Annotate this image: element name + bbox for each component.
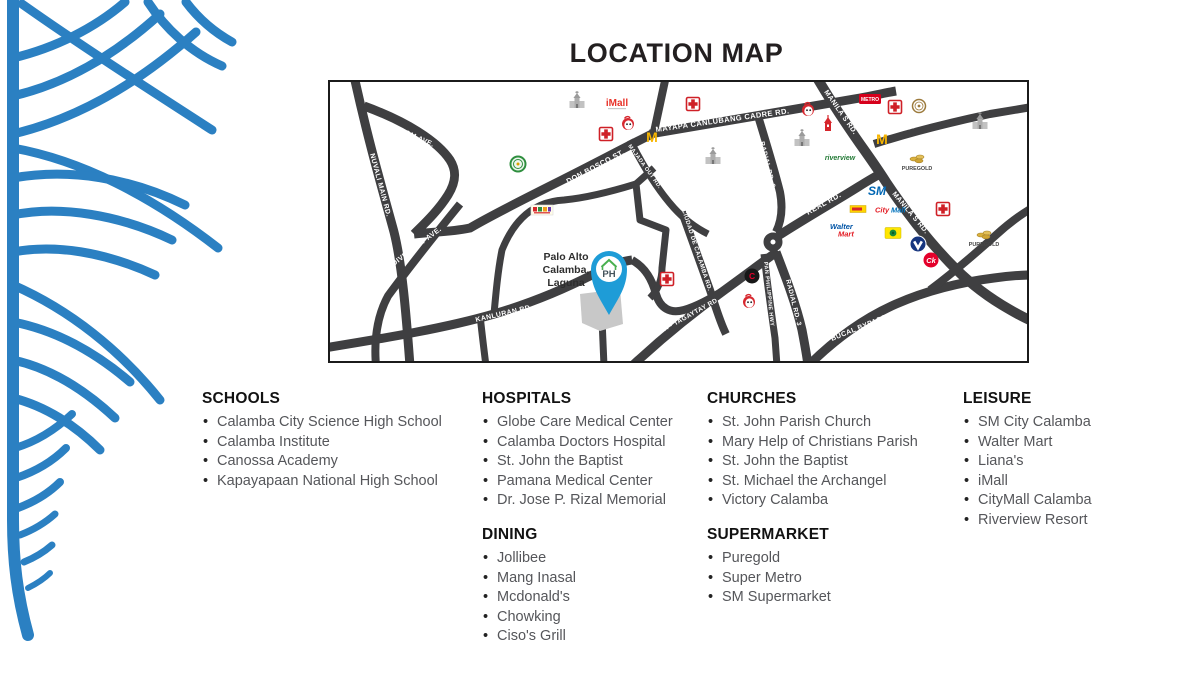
- list-item: Mary Help of Christians Parish: [707, 433, 962, 453]
- list-item: Jollibee: [482, 549, 707, 569]
- church-icon: [706, 147, 721, 164]
- svg-text:METRO: METRO: [861, 97, 879, 103]
- legend-section-supermarket: SUPERMARKET Puregold Super Metro SM Supe…: [707, 526, 962, 608]
- list-item: Victory Calamba: [707, 491, 962, 511]
- resort-logo-icon: [531, 205, 553, 215]
- red-cross-icon: [600, 128, 613, 141]
- chowking-logo: C: [745, 269, 760, 284]
- svg-text:iMall: iMall: [606, 98, 628, 109]
- list-item: Mang Inasal: [482, 569, 707, 589]
- place-label-line1: Palo Alto: [543, 251, 588, 263]
- svg-text:Mall: Mall: [891, 206, 907, 215]
- road: [808, 275, 1027, 361]
- school-seal-green-icon: [511, 157, 526, 172]
- svg-text:Ck: Ck: [926, 256, 936, 265]
- svg-text:PUREGOLD: PUREGOLD: [969, 242, 1000, 248]
- red-cross-icon: [661, 273, 674, 286]
- roundabout: [767, 236, 779, 248]
- svg-text:Mart: Mart: [838, 230, 854, 239]
- legend-section-leisure: LEISURE SM City Calamba Walter Mart Lian…: [963, 390, 1163, 531]
- road-label-calamba-tagaytay: CALAMBA - TAGAYTAY RD.: [636, 296, 721, 348]
- list-item: Calamba Institute: [202, 433, 477, 453]
- list-item: Liana's: [963, 452, 1163, 472]
- legend-section-dining: DINING Jollibee Mang Inasal Mcdonald's C…: [482, 526, 707, 647]
- church-icon: [795, 129, 810, 146]
- legend-section-hospitals: HOSPITALS Globe Care Medical Center Cala…: [482, 390, 707, 511]
- red-cross-icon: [687, 98, 700, 111]
- place-label-line3: Laguna: [547, 277, 584, 289]
- list-item: CityMall Calamba: [963, 491, 1163, 511]
- list-item: Chowking: [482, 608, 707, 628]
- place-label: Palo Alto Calamba, Laguna: [543, 251, 590, 289]
- svg-text:City: City: [875, 206, 890, 215]
- legend-section-schools: SCHOOLS Calamba City Science High School…: [202, 390, 477, 491]
- red-cross-icon: [937, 203, 950, 216]
- road-label-pan-philippine: PAN PHILIPPINE HWY: [762, 262, 775, 327]
- chowking-ck-logo: Ck: [924, 253, 939, 268]
- mcdonalds-icon: M: [646, 129, 658, 145]
- place-label-line2: Calamba,: [543, 264, 590, 276]
- slide: LOCATION MAP: [0, 0, 1200, 675]
- list-item: Puregold: [707, 549, 962, 569]
- legend-column-4: LEISURE SM City Calamba Walter Mart Lian…: [963, 390, 1163, 531]
- legend-column-2: HOSPITALS Globe Care Medical Center Cala…: [482, 390, 707, 647]
- list-item: Walter Mart: [963, 433, 1163, 453]
- list-item: iMall: [963, 472, 1163, 492]
- list-item: Super Metro: [707, 569, 962, 589]
- mcdonalds-icon: M: [876, 131, 888, 147]
- savemore-logo-icon: [885, 228, 901, 239]
- jollibee-icon: [622, 117, 634, 130]
- list-item: SM Supermarket: [707, 588, 962, 608]
- section-title: SCHOOLS: [202, 390, 477, 408]
- waltermart-logo: Walter Mart: [830, 222, 854, 239]
- section-title: DINING: [482, 526, 707, 544]
- leaf-decoration: [0, 0, 240, 675]
- road-label-don-bosco: DON BOSCO ST.: [565, 148, 626, 186]
- section-title: SUPERMARKET: [707, 526, 962, 544]
- list-item: Calamba City Science High School: [202, 413, 477, 433]
- riverview-logo: riverview: [825, 155, 856, 162]
- svg-text:C: C: [749, 271, 755, 281]
- location-map: WISDOM AVE. NUVALI MAIN RD. DIVERSITY AV…: [328, 80, 1029, 363]
- road-label-radial-lower: RADIAL RD. 3: [784, 279, 802, 327]
- road-label-nuvali: NUVALI MAIN RD.: [368, 153, 392, 218]
- road-label-ciudad: CIUDAD DE CALAMBA RD.: [680, 209, 712, 292]
- list-item: Calamba Doctors Hospital: [482, 433, 707, 453]
- legend-column-1: SCHOOLS Calamba City Science High School…: [202, 390, 477, 491]
- store-logo-icon: [850, 206, 866, 213]
- red-church-icon: [824, 115, 832, 131]
- list-item: St. John Parish Church: [707, 413, 962, 433]
- list-item: Globe Care Medical Center: [482, 413, 707, 433]
- svg-text:PUREGOLD: PUREGOLD: [902, 166, 933, 172]
- pin-label: PH: [602, 269, 615, 280]
- list-item: Riverview Resort: [963, 511, 1163, 531]
- section-title: LEISURE: [963, 390, 1163, 408]
- list-item: Dr. Jose P. Rizal Memorial: [482, 491, 707, 511]
- red-cross-icon: [889, 101, 902, 114]
- road-label-mayapa: MAYAPA CANLUBANG CADRE RD.: [655, 106, 790, 134]
- sm-logo: SM: [868, 184, 887, 198]
- list-item: St. Michael the Archangel: [707, 472, 962, 492]
- list-item: Mcdonald's: [482, 588, 707, 608]
- citymall-logo: City Mall: [875, 206, 907, 215]
- list-item: Canossa Academy: [202, 452, 477, 472]
- list-item: Pamana Medical Center: [482, 472, 707, 492]
- supermetro-logo: METRO: [859, 94, 881, 104]
- jollibee-icon: [743, 295, 755, 308]
- school-seal-icon: [913, 100, 926, 113]
- list-item: Ciso's Grill: [482, 627, 707, 647]
- list-item: St. John the Baptist: [707, 452, 962, 472]
- legend-section-churches: CHURCHES St. John Parish Church Mary Hel…: [707, 390, 962, 511]
- list-item: SM City Calamba: [963, 413, 1163, 433]
- church-icon: [570, 91, 585, 108]
- puregold-logo: PUREGOLD: [902, 155, 933, 172]
- list-item: St. John the Baptist: [482, 452, 707, 472]
- road-label-bucal: BUCAL BYPASS RD.: [830, 308, 902, 343]
- map-canvas: WISDOM AVE. NUVALI MAIN RD. DIVERSITY AV…: [330, 82, 1027, 361]
- page-title: LOCATION MAP: [328, 38, 1025, 69]
- list-item: Kapayapaan National High School: [202, 472, 477, 492]
- section-title: HOSPITALS: [482, 390, 707, 408]
- victory-logo: [910, 236, 926, 252]
- section-title: CHURCHES: [707, 390, 962, 408]
- legend-column-3: CHURCHES St. John Parish Church Mary Hel…: [707, 390, 962, 608]
- imall-logo: iMall: [606, 98, 628, 109]
